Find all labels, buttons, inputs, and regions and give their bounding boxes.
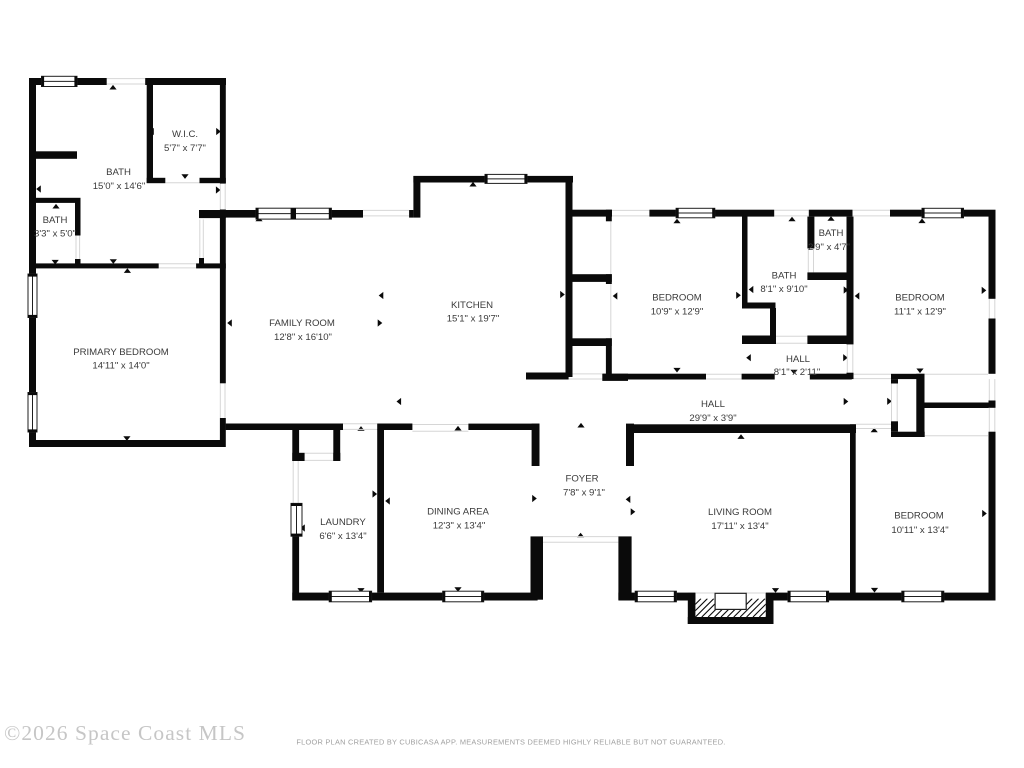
- svg-text:2'9" x 4'7": 2'9" x 4'7": [808, 242, 850, 253]
- svg-text:BATH: BATH: [819, 228, 844, 239]
- svg-text:15'1" x 19'7": 15'1" x 19'7": [447, 314, 500, 325]
- svg-text:29'9" x 3'9": 29'9" x 3'9": [689, 413, 736, 424]
- svg-text:12'8" x 16'10": 12'8" x 16'10": [274, 332, 332, 343]
- svg-text:©2026 Space Coast MLS: ©2026 Space Coast MLS: [4, 721, 246, 745]
- svg-text:15'0" x 14'6": 15'0" x 14'6": [93, 181, 146, 192]
- svg-text:10'9" x 12'9": 10'9" x 12'9": [651, 306, 704, 317]
- svg-text:12'3" x 13'4": 12'3" x 13'4": [433, 521, 486, 532]
- svg-text:17'11" x 13'4": 17'11" x 13'4": [711, 521, 768, 532]
- svg-text:FOYER: FOYER: [565, 474, 598, 485]
- svg-text:BATH: BATH: [43, 215, 68, 226]
- svg-text:8'1" x 2'11": 8'1" x 2'11": [774, 367, 821, 378]
- svg-text:W.I.C.: W.I.C.: [172, 129, 198, 140]
- svg-text:11'1" x 12'9": 11'1" x 12'9": [894, 307, 946, 318]
- svg-text:3'3" x 5'0": 3'3" x 5'0": [34, 229, 76, 240]
- svg-text:8'1" x 9'10": 8'1" x 9'10": [760, 284, 807, 295]
- svg-text:KITCHEN: KITCHEN: [451, 300, 493, 311]
- svg-text:BATH: BATH: [772, 271, 797, 282]
- svg-text:10'11" x 13'4": 10'11" x 13'4": [891, 525, 948, 536]
- svg-text:7'8" x 9'1": 7'8" x 9'1": [563, 488, 605, 499]
- svg-text:LIVING ROOM: LIVING ROOM: [708, 507, 772, 518]
- svg-text:5'7" x 7'7": 5'7" x 7'7": [164, 143, 206, 154]
- svg-text:14'11" x 14'0": 14'11" x 14'0": [92, 361, 149, 372]
- svg-text:HALL: HALL: [701, 399, 726, 410]
- svg-text:FLOOR PLAN CREATED BY CUBICASA: FLOOR PLAN CREATED BY CUBICASA APP. MEAS…: [296, 738, 725, 747]
- svg-text:DINING AREA: DINING AREA: [427, 507, 489, 518]
- svg-text:BEDROOM: BEDROOM: [895, 293, 945, 304]
- svg-text:6'6" x 13'4": 6'6" x 13'4": [319, 531, 366, 542]
- svg-text:PRIMARY BEDROOM: PRIMARY BEDROOM: [73, 347, 169, 358]
- svg-text:FAMILY ROOM: FAMILY ROOM: [269, 318, 335, 329]
- svg-text:BEDROOM: BEDROOM: [894, 510, 944, 521]
- svg-text:BATH: BATH: [106, 167, 131, 178]
- svg-text:LAUNDRY: LAUNDRY: [320, 517, 366, 528]
- svg-text:BEDROOM: BEDROOM: [652, 292, 702, 303]
- svg-text:HALL: HALL: [786, 354, 811, 365]
